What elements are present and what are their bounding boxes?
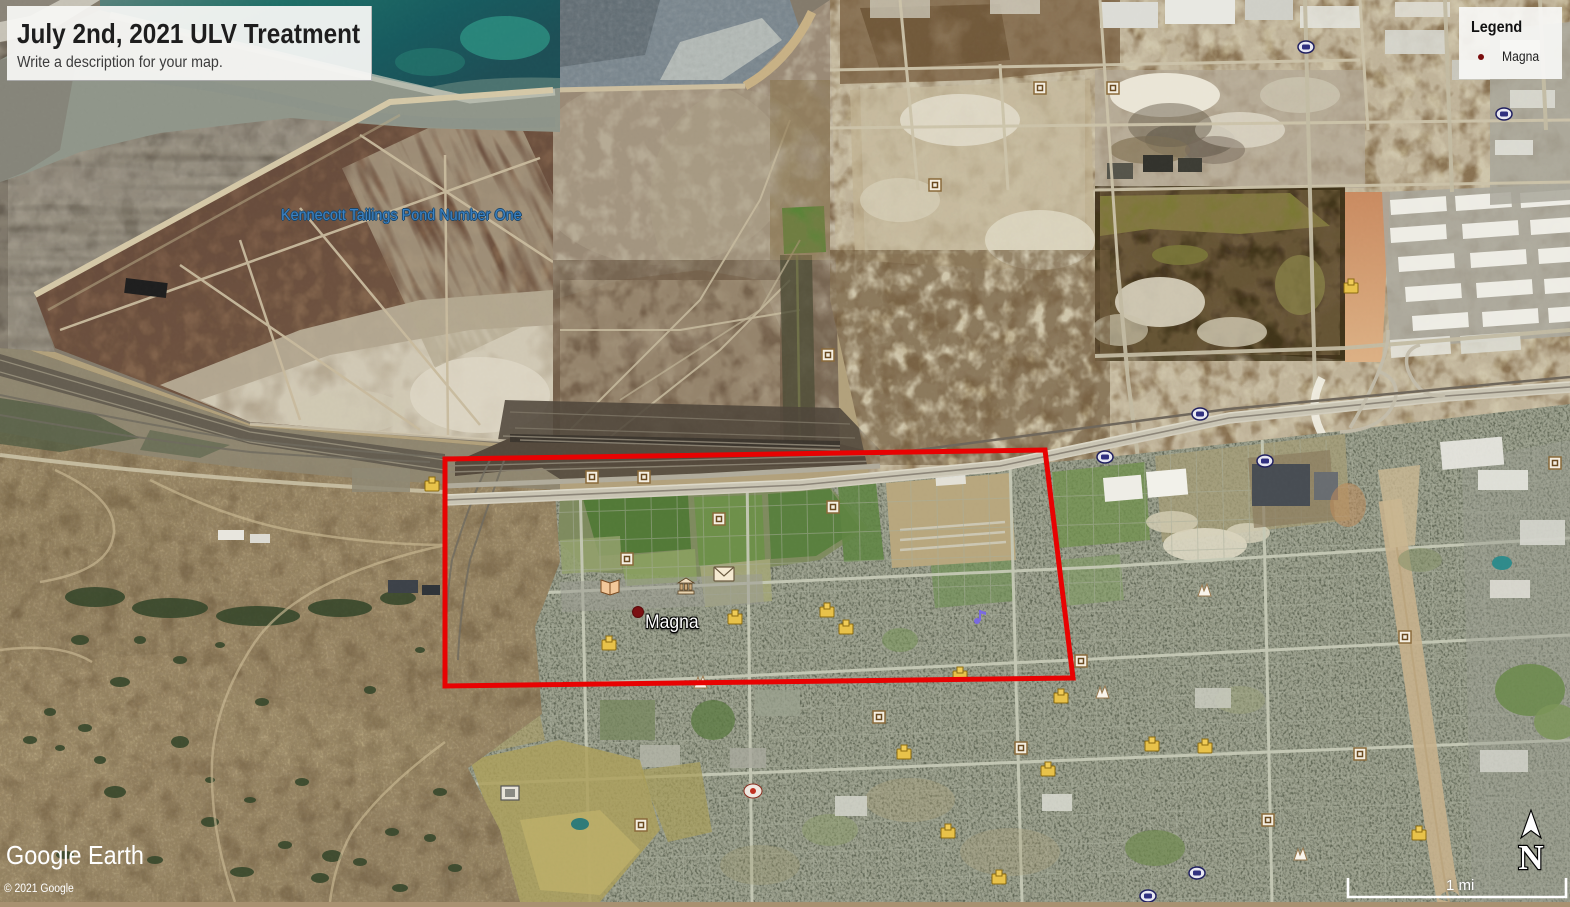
svg-text:N: N xyxy=(1518,838,1543,877)
